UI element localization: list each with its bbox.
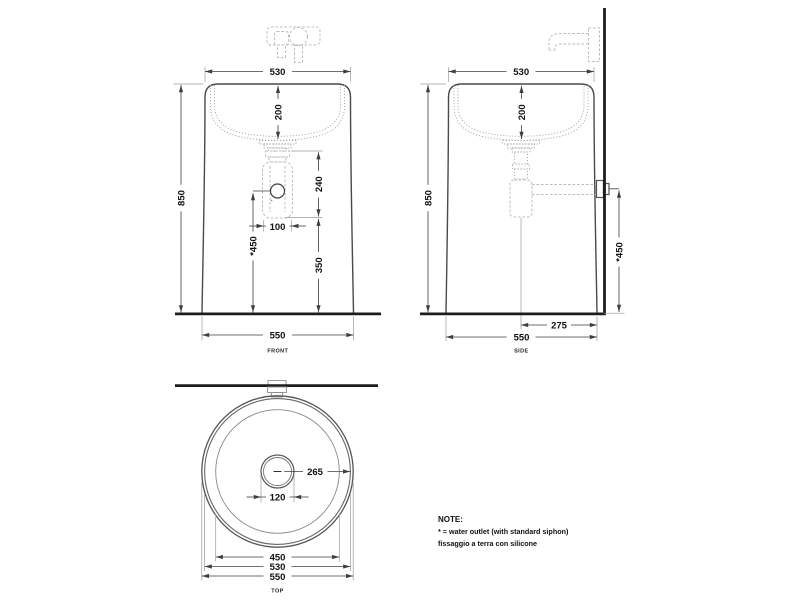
note-line-fixing: fissaggio a terra con silicone (438, 539, 568, 548)
note-block: NOTE: * = water outlet (with standard si… (438, 515, 568, 551)
front-dim-450-outlet: *450 (247, 191, 271, 312)
side-dim-275-text: 275 (551, 321, 568, 332)
washbasin-drawing: 530 200 850 240 350 (0, 0, 800, 600)
side-view: 530 200 850 *450 275 (420, 8, 625, 355)
front-view: 530 200 850 240 350 (174, 27, 382, 355)
water-outlet-front (271, 184, 285, 198)
note-title: NOTE: (438, 515, 568, 524)
side-dim-450-outlet: *450 (609, 189, 625, 312)
faucet-front (267, 27, 320, 63)
drain-side (503, 141, 540, 180)
siphon-side (510, 180, 596, 217)
side-dim-530-text: 530 (513, 67, 529, 78)
front-dim-200-text: 200 (273, 104, 284, 120)
top-dim-550-text: 550 (270, 572, 286, 583)
front-view-label: FRONT (267, 349, 288, 355)
front-dim-100-text: 100 (270, 222, 286, 233)
front-dim-550: 550 (202, 317, 354, 342)
wall-outlet-fitting (597, 181, 610, 198)
top-view: 265 120 450 530 55 (175, 381, 378, 595)
front-dim-530: 530 (205, 66, 351, 83)
front-dim-350-text: 350 (314, 257, 325, 273)
side-dim-530: 530 (449, 66, 595, 83)
top-dim-120: 120 (247, 475, 309, 504)
side-dim-850: 850 (421, 84, 447, 312)
top-dim-450: 450 (216, 514, 340, 564)
outlet-mark (271, 200, 273, 202)
front-dim-550-text: 550 (270, 331, 286, 342)
top-dim-265-text: 265 (307, 467, 324, 478)
front-dim-850: 850 (174, 84, 204, 312)
front-dim-530-text: 530 (270, 67, 286, 78)
side-dim-200: 200 (515, 86, 528, 139)
drain-front (259, 141, 296, 152)
front-dim-200: 200 (272, 86, 285, 139)
front-dim-350: 350 (312, 219, 325, 313)
side-dim-550: 550 (446, 317, 597, 344)
technical-drawing-sheet: 530 200 850 240 350 (0, 0, 800, 600)
front-dim-240: 240 (285, 151, 325, 218)
front-dim-outlet-height-text: *450 (248, 236, 259, 256)
front-dim-100: 100 (249, 220, 306, 233)
side-view-label: SIDE (514, 349, 528, 355)
front-dim-850-text: 850 (176, 190, 187, 206)
side-dim-200-text: 200 (517, 104, 528, 120)
note-line-water-outlet: * = water outlet (with standard siphon) (438, 527, 568, 536)
side-dim-outlet-height-text: *450 (614, 242, 625, 262)
front-dim-240-text: 240 (314, 176, 325, 192)
faucet-side (549, 28, 600, 62)
side-dim-550-text: 550 (514, 333, 530, 344)
top-dim-120-text: 120 (270, 493, 286, 504)
top-view-label: TOP (271, 589, 283, 595)
side-dim-850-text: 850 (423, 190, 434, 206)
